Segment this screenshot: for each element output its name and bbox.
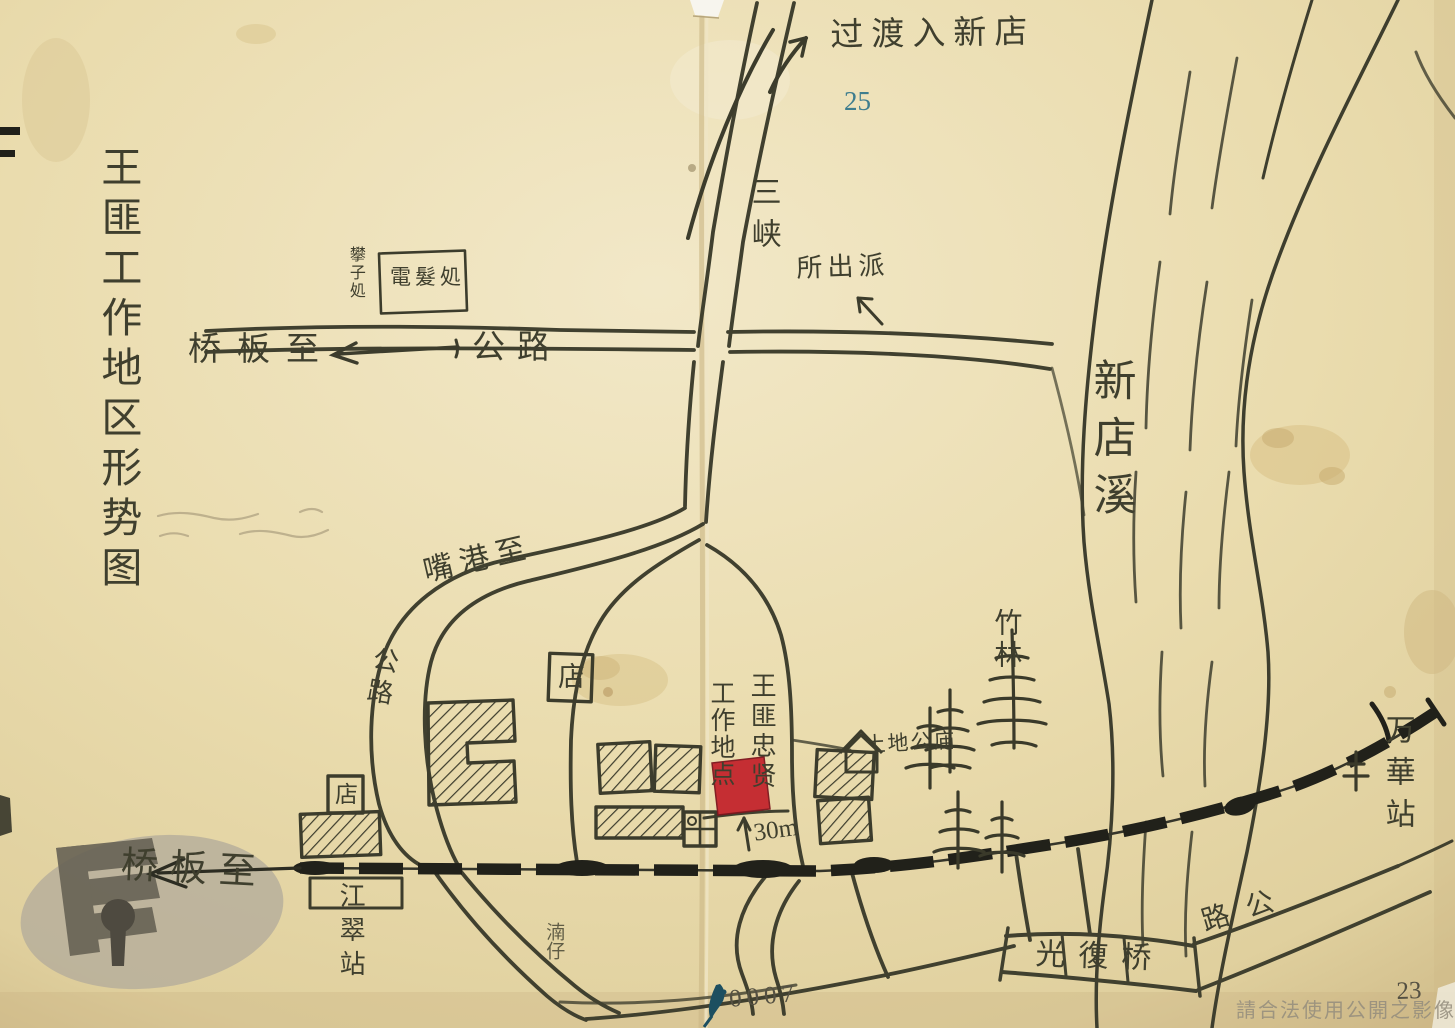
nanzi-label: 湳仔 (543, 922, 564, 972)
earth-god-temple-label: 土地公庙 (864, 729, 957, 757)
hatched-building (654, 745, 701, 793)
police-station-label: 所出派 (796, 251, 890, 283)
highway-west-label: 公路 (472, 330, 562, 367)
perm-shop-label: 電髮処 (390, 266, 465, 290)
target-site-column: 工作地点 (706, 680, 734, 786)
hatched-building (300, 812, 380, 858)
hatched-building (598, 742, 652, 794)
xindian-creek-label: 新店溪 (1086, 358, 1134, 558)
blue-page-number: 25 (844, 86, 871, 116)
shop-upper-label: 店 (558, 662, 585, 692)
perm-shop-side-label: 攀子処 (346, 246, 364, 314)
guangfu-bridge-label: 光復桥 (1035, 938, 1165, 976)
wanhua-station-label: 万華站 (1380, 714, 1414, 866)
sanxia-label: 三峡 (746, 176, 780, 298)
map-title: 王匪工作地区形势图 (94, 146, 140, 591)
hatched-building (818, 797, 872, 843)
usage-watermark-text: 請合法使用公開之影像 (1236, 1000, 1455, 1022)
route-to-xindian-label: 过渡入新店 (830, 14, 1036, 55)
jiangcui-station-label: 江翠站 (336, 882, 365, 986)
bamboo-grove-label: 竹林 (990, 608, 1021, 674)
hatched-building (596, 807, 683, 838)
to-banqiao-railway-label: 桥板至 (120, 845, 269, 894)
target-name-column: 王匪忠贤 (747, 672, 776, 798)
shop-lower-label: 店 (335, 782, 358, 808)
scanned-map-document: 王匪工作地区形势图 过渡入新店 25 三峡 所出派 攀子処 電髮処 桥板至 公路… (0, 0, 1455, 1028)
to-banqiao-highway-label: 桥板至 (188, 332, 335, 369)
